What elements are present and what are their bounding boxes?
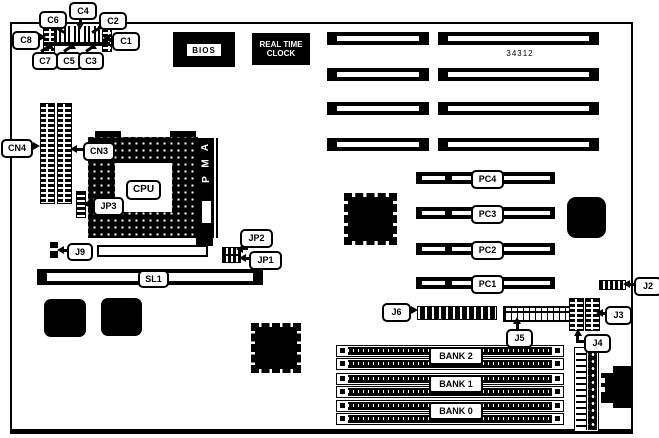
leader-cn3: [76, 148, 83, 151]
isa-slot: [438, 32, 599, 45]
callout-jp2: JP2: [240, 229, 273, 248]
j6-header: [417, 306, 497, 320]
j3-block: [569, 298, 584, 331]
callout-j3: J3: [605, 306, 632, 325]
callout-bank1: BANK 1: [429, 375, 483, 393]
callout-j6: J6: [382, 303, 411, 322]
callout-c1: C1: [112, 32, 140, 51]
callout-cn3: CN3: [83, 142, 115, 161]
isa-slot: [438, 138, 599, 151]
leader-c1-arrow: [103, 34, 110, 42]
leader-c3-arrow: [89, 42, 97, 49]
amp-cutout: [201, 200, 212, 224]
qfp-chip: [251, 323, 301, 373]
callout-pc4: PC4: [471, 170, 504, 189]
callout-j9: J9: [67, 243, 93, 261]
callout-c6: C6: [39, 11, 67, 29]
leader-jp1-arrow: [239, 254, 246, 262]
callout-bank0: BANK 0: [429, 402, 483, 420]
chip: [567, 197, 606, 238]
callout-c7: C7: [32, 52, 58, 70]
callout-j5: J5: [506, 329, 533, 348]
keyboard-connector-notch: [601, 387, 605, 392]
leader-cn3-arrow: [70, 145, 77, 153]
j4-pin-column-left: [576, 349, 587, 430]
leader-j2-arrow: [623, 280, 630, 288]
leader-c5-arrow: [68, 42, 76, 49]
callout-pc2: PC2: [471, 241, 504, 260]
callout-pc1: PC1: [471, 275, 504, 294]
amp-label: A M P: [198, 142, 214, 198]
leader-c7-arrow: [46, 42, 54, 49]
cn4-connector: [40, 103, 55, 204]
part-number: 34312: [498, 49, 542, 59]
j2-header: [599, 280, 626, 290]
isa-slot: [327, 68, 429, 81]
chip: [44, 299, 86, 337]
isa-slot: [327, 32, 429, 45]
chip: [101, 298, 142, 336]
leader-cn4-arrow: [33, 142, 40, 150]
leader-j9-arrow: [57, 246, 64, 254]
callout-c8: C8: [12, 31, 40, 50]
callout-c4: C4: [69, 2, 97, 20]
callout-sl1: SL1: [138, 270, 169, 288]
leader-j5-arrow: [513, 317, 521, 324]
pci-notch: [445, 172, 452, 184]
rtc-label-line1: REAL TIME: [260, 40, 303, 49]
keyboard-connector-notch: [601, 378, 605, 383]
leader-c4-arrow: [76, 23, 84, 30]
callout-jp3: JP3: [93, 197, 124, 216]
isa-slot: [438, 68, 599, 81]
j4-connector: [574, 347, 599, 432]
amp-regulator-edge: [216, 138, 218, 238]
isa-slot: [327, 138, 429, 151]
leader-j6-arrow: [411, 306, 418, 314]
callout-cn4: CN4: [1, 139, 33, 158]
callout-c3: C3: [78, 52, 104, 70]
qfp-chip-large: [344, 193, 397, 245]
j4-pin-column-right: [588, 349, 597, 430]
rtc-chip: REAL TIME CLOCK: [252, 33, 310, 65]
pci-notch: [445, 207, 452, 219]
callout-pc3: PC3: [471, 205, 504, 224]
isa-slot: [327, 102, 429, 115]
callout-jp1: JP1: [249, 251, 282, 270]
pci-notch: [445, 277, 452, 289]
pci-notch: [445, 243, 452, 255]
rtc-label-line2: CLOCK: [267, 49, 295, 58]
leader-j3-arrow: [596, 309, 603, 317]
callout-bank2: BANK 2: [429, 347, 483, 365]
leader-jp3-arrow: [83, 200, 90, 208]
callout-j4: J4: [584, 334, 611, 353]
motherboard-diagram: C6 C4 C2 C8 C1 C7 C5 C3 BIOS REAL TIME C…: [0, 0, 659, 438]
leader-j4-arrow: [574, 329, 582, 336]
bios-label: BIOS: [187, 44, 221, 56]
keyboard-connector: [613, 366, 632, 408]
leader-c8-arrow: [39, 33, 46, 41]
cn3-connector: [57, 103, 72, 204]
callout-j2: J2: [634, 277, 659, 296]
callout-c2: C2: [99, 12, 127, 30]
callout-cpu: CPU: [126, 180, 161, 200]
isa-slot: [438, 102, 599, 115]
cpu-socket-lever-plate: [97, 245, 208, 257]
